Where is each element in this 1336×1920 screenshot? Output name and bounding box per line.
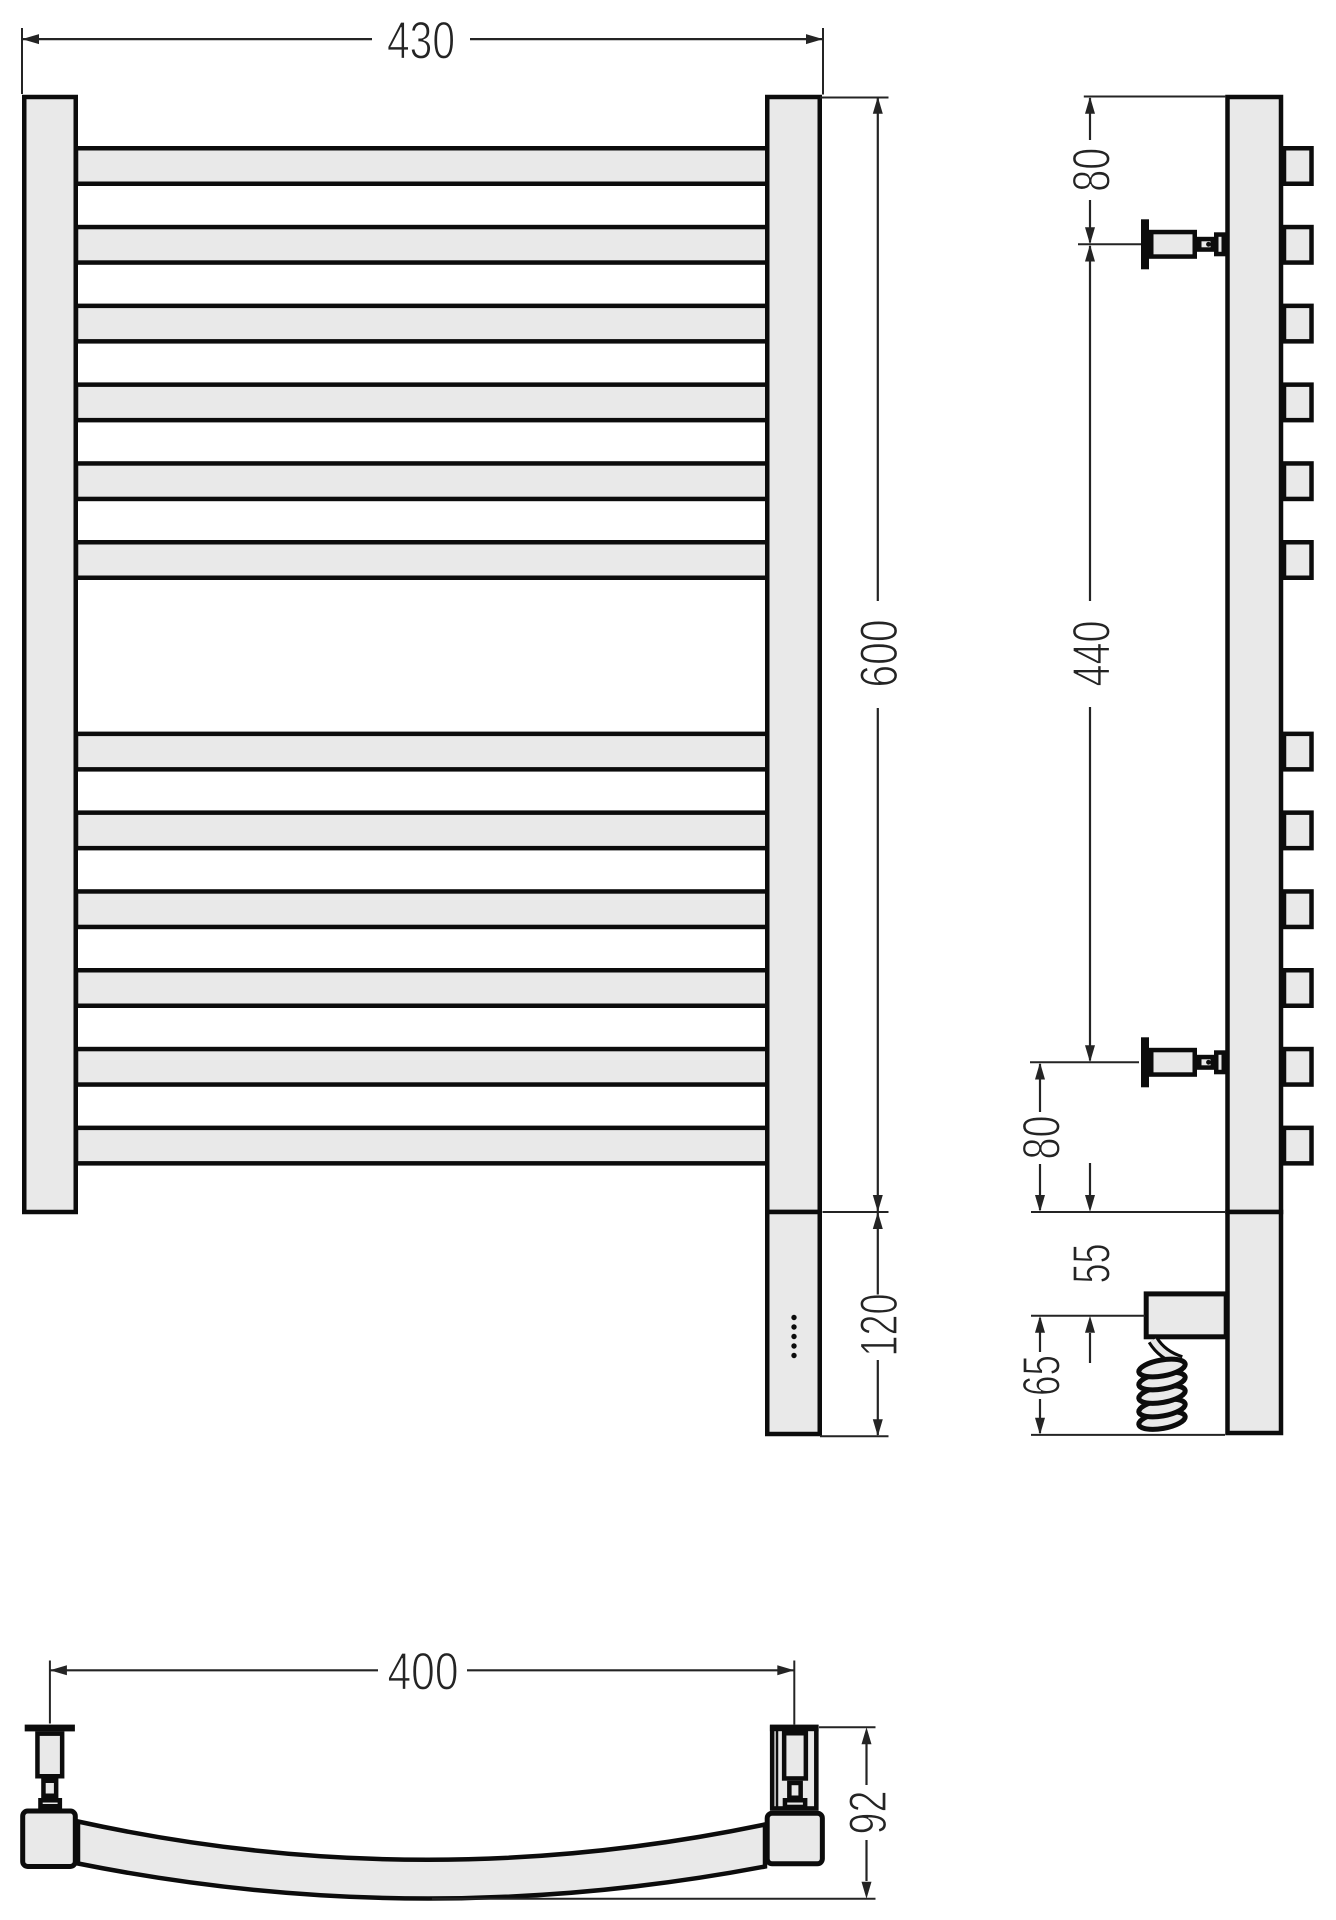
svg-text:92: 92 [839,1791,898,1835]
svg-text:120: 120 [850,1294,909,1357]
svg-text:400: 400 [388,1642,459,1701]
svg-text:80: 80 [1062,148,1121,192]
svg-text:430: 430 [387,11,455,70]
svg-text:440: 440 [1062,621,1121,687]
svg-text:80: 80 [1012,1116,1071,1160]
svg-text:65: 65 [1012,1355,1071,1396]
svg-text:600: 600 [850,620,909,688]
svg-text:55: 55 [1062,1244,1121,1284]
